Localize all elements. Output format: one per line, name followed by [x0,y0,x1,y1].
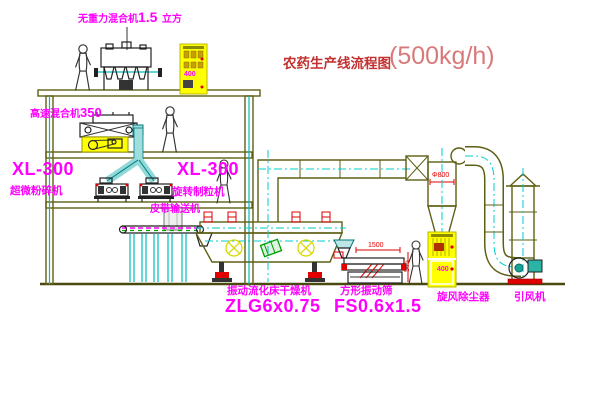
title-text: 农药生产线流程图 [283,56,391,71]
granulator-model-label: XL-300 [177,160,239,178]
control-cabinet-1 [180,44,207,94]
y-duct [107,128,154,181]
exhaust-duct [258,156,428,222]
dryer-name-label: 振动流化床干燥机 [227,286,311,297]
cabinet-2-reading: 400 [437,266,449,273]
title-capacity: (500kg/h) [389,44,495,69]
sieve-length-dim: 1500 [368,242,384,249]
granulator-name-label: 旋转制粒机 [172,187,225,198]
belt-conveyor-label: 皮带输送机 [150,205,200,215]
cyclone-dia-dim: Φ800 [432,172,449,179]
left-unit-model-label: XL-300 [12,160,74,178]
high-speed-mixer-label: 高速混合机350 [30,105,102,121]
dryer-model-label: ZLG6x0.75 [225,297,321,315]
person-figure [409,241,423,284]
control-cabinet-2 [428,232,456,287]
granulator-1 [94,178,130,202]
diagram-canvas: 农药生产线流程图 (500kg/h) 无重力混合机1.5 立方 高速混合机350… [0,0,600,403]
gravity-mixer-drawing [94,42,162,90]
belt-conveyor-drawing [120,226,213,282]
person-figure [163,107,178,152]
person-figure [76,45,91,90]
sieve-model-label: FS0.6x1.5 [334,297,422,315]
sieve-name-label: 方形振动筛 [340,286,393,297]
page-title: 农药生产线流程图 [283,56,391,72]
granulator-2 [138,178,174,202]
dryer-logo [260,239,281,256]
cabinet-1-reading: 400 [184,71,196,78]
cyclone-label: 旋风除尘器 [437,292,490,303]
left-unit-name-label: 超微粉碎机 [10,186,63,197]
gravity-mixer-label: 无重力混合机1.5 立方 [78,10,182,26]
fan-label: 引风机 [514,292,546,303]
sieve-height-dim: 545 [404,260,411,272]
